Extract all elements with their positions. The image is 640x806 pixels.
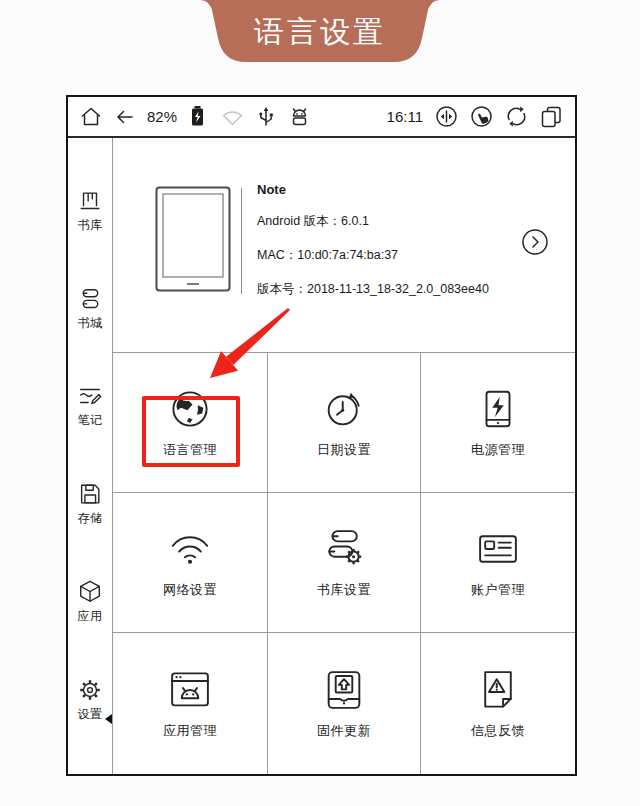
sidebar-item-apps[interactable]: 应用 — [77, 578, 103, 625]
date-clock-icon — [321, 386, 367, 432]
feedback-doc-icon — [475, 667, 521, 713]
grid-item-firmware[interactable]: 固件更新 — [267, 632, 420, 774]
android-version-value: 6.0.1 — [341, 214, 369, 228]
grid-item-label: 固件更新 — [317, 722, 371, 740]
sync-refresh-icon[interactable] — [505, 105, 528, 128]
mac-row: MAC：10:d0:7a:74:ba:37 — [257, 247, 489, 264]
sidebar: 书库 书城 笔记 — [68, 138, 113, 774]
info-detail-button[interactable] — [521, 228, 549, 256]
device-info-section: Note Android 版本：6.0.1 MAC：10:d0:7a:74:ba… — [113, 138, 575, 352]
grid-item-label: 电源管理 — [471, 441, 525, 459]
device-info-text: Note Android 版本：6.0.1 MAC：10:d0:7a:74:ba… — [257, 182, 489, 315]
sidebar-item-library[interactable]: 书库 — [77, 189, 103, 234]
build-row: 版本号：2018-11-13_18-32_2.0_083ee40 — [257, 281, 489, 298]
sidebar-item-label: 笔记 — [78, 412, 103, 429]
page-title-banner: 语言设置 — [200, 0, 440, 63]
sidebar-item-label: 书库 — [78, 217, 103, 234]
bookstore-icon — [77, 286, 103, 312]
touch-mode-icon[interactable] — [470, 105, 493, 128]
status-bar-right: 16:11 — [387, 105, 563, 128]
android-version-label: Android 版本： — [257, 214, 341, 228]
grid-item-date[interactable]: 日期设置 — [267, 352, 420, 492]
library-icon — [77, 189, 103, 214]
sidebar-item-label: 书城 — [78, 315, 103, 332]
screenshot-page: 语言设置 82% — [0, 0, 640, 806]
grid-item-power[interactable]: 电源管理 — [420, 352, 575, 492]
grid-item-label: 日期设置 — [317, 441, 371, 459]
android-icon — [288, 107, 311, 127]
grid-item-label: 信息反馈 — [471, 722, 525, 740]
sidebar-item-settings[interactable]: 设置 — [77, 677, 103, 723]
power-battery-icon — [475, 386, 521, 432]
android-version-row: Android 版本：6.0.1 — [257, 213, 489, 230]
battery-icon — [190, 105, 208, 128]
home-icon[interactable] — [80, 106, 102, 127]
library-gear-icon — [321, 526, 367, 572]
status-bar: 82% — [68, 97, 575, 138]
device-name: Note — [257, 182, 489, 197]
back-arrow-icon[interactable] — [115, 108, 134, 126]
app-window-icon — [167, 667, 213, 713]
mac-label: MAC： — [257, 248, 297, 262]
page-title: 语言设置 — [200, 0, 440, 63]
battery-percent: 82% — [147, 108, 177, 125]
account-card-icon — [475, 526, 521, 572]
notes-icon — [77, 383, 103, 409]
selected-item-marker — [105, 714, 112, 724]
info-divider — [241, 188, 242, 294]
grid-item-feedback[interactable]: 信息反馈 — [420, 632, 575, 774]
sidebar-item-label: 应用 — [78, 608, 103, 625]
device-image — [155, 186, 231, 292]
grid-item-label: 书库设置 — [317, 581, 371, 599]
network-wifi-icon — [167, 526, 213, 572]
pages-icon[interactable] — [540, 105, 563, 128]
sidebar-item-notes[interactable]: 笔记 — [77, 383, 103, 429]
sidebar-item-label: 设置 — [78, 706, 103, 723]
storage-icon — [77, 481, 103, 507]
build-value: 2018-11-13_18-32_2.0_083ee40 — [307, 282, 489, 296]
usb-icon — [257, 106, 275, 127]
sidebar-item-bookstore[interactable]: 书城 — [77, 286, 103, 332]
sidebar-item-storage[interactable]: 存储 — [77, 481, 103, 527]
grid-item-label: 应用管理 — [163, 722, 217, 740]
a2-refresh-mode-icon[interactable] — [435, 105, 458, 128]
grid-item-library-settings[interactable]: 书库设置 — [267, 492, 420, 632]
build-label: 版本号： — [257, 282, 307, 296]
settings-icon — [77, 677, 103, 703]
grid-item-account[interactable]: 账户管理 — [420, 492, 575, 632]
grid-item-label: 账户管理 — [471, 581, 525, 599]
clock-time: 16:11 — [387, 108, 423, 125]
wifi-icon — [221, 107, 244, 126]
sidebar-item-label: 存储 — [78, 510, 103, 527]
highlight-box — [142, 396, 240, 467]
grid-item-apps-management[interactable]: 应用管理 — [113, 632, 267, 774]
grid-item-network[interactable]: 网络设置 — [113, 492, 267, 632]
mac-value: 10:d0:7a:74:ba:37 — [297, 248, 398, 262]
firmware-update-icon — [321, 667, 367, 713]
apps-icon — [77, 578, 103, 605]
grid-item-label: 网络设置 — [163, 581, 217, 599]
